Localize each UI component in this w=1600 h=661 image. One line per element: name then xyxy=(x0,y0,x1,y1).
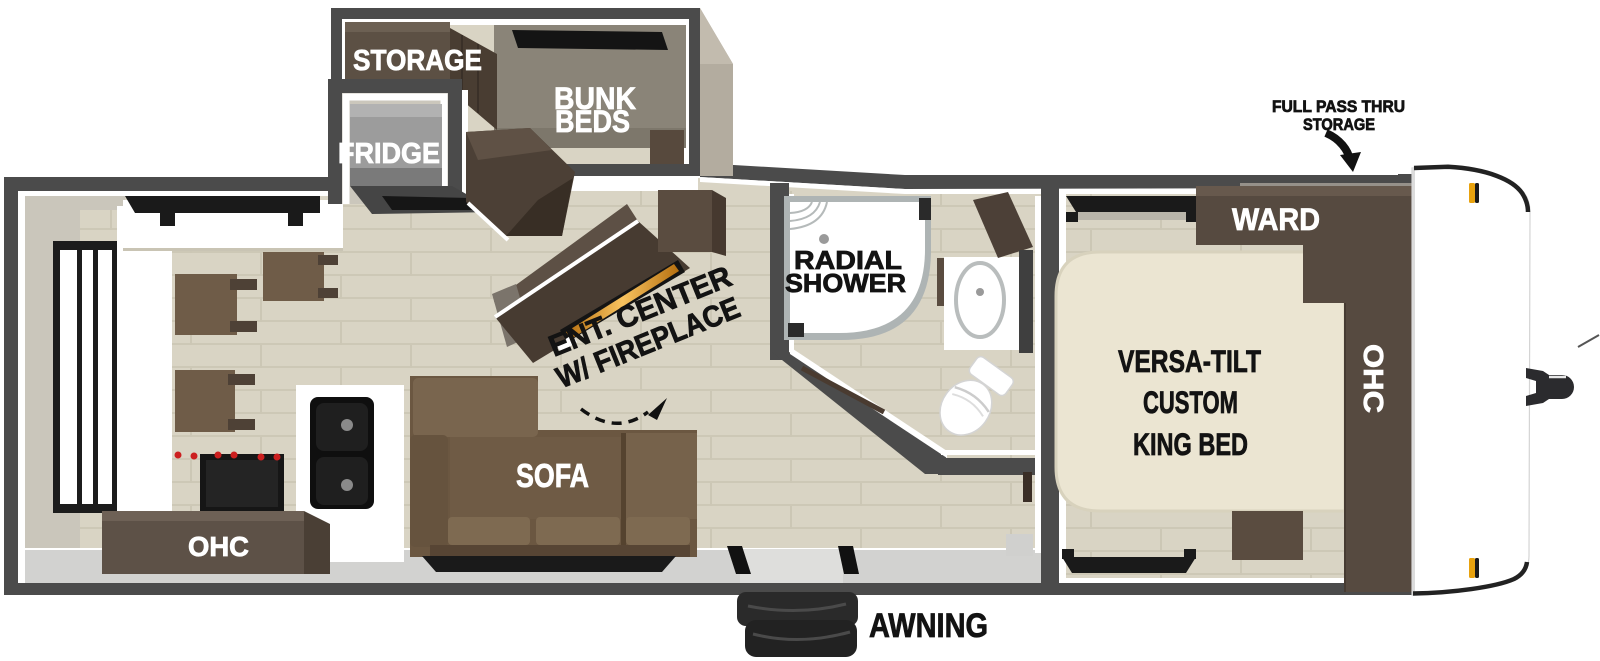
svg-text:CUSTOM: CUSTOM xyxy=(1143,384,1238,420)
svg-text:FULL PASS THRU: FULL PASS THRU xyxy=(1272,97,1405,116)
svg-text:VERSA-TILT: VERSA-TILT xyxy=(1118,343,1261,379)
svg-text:STORAGE: STORAGE xyxy=(1303,115,1375,134)
svg-text:AWNING: AWNING xyxy=(869,607,988,645)
svg-text:SOFA: SOFA xyxy=(516,457,589,494)
svg-text:OHC: OHC xyxy=(1358,344,1389,413)
svg-text:KING BED: KING BED xyxy=(1133,426,1248,462)
svg-text:WARD: WARD xyxy=(1232,201,1320,237)
svg-text:BEDS: BEDS xyxy=(555,103,630,139)
svg-text:STORAGE: STORAGE xyxy=(353,45,482,77)
svg-text:SHOWER: SHOWER xyxy=(785,268,906,298)
svg-text:FRIDGE: FRIDGE xyxy=(338,138,440,170)
svg-text:OHC: OHC xyxy=(188,531,249,562)
